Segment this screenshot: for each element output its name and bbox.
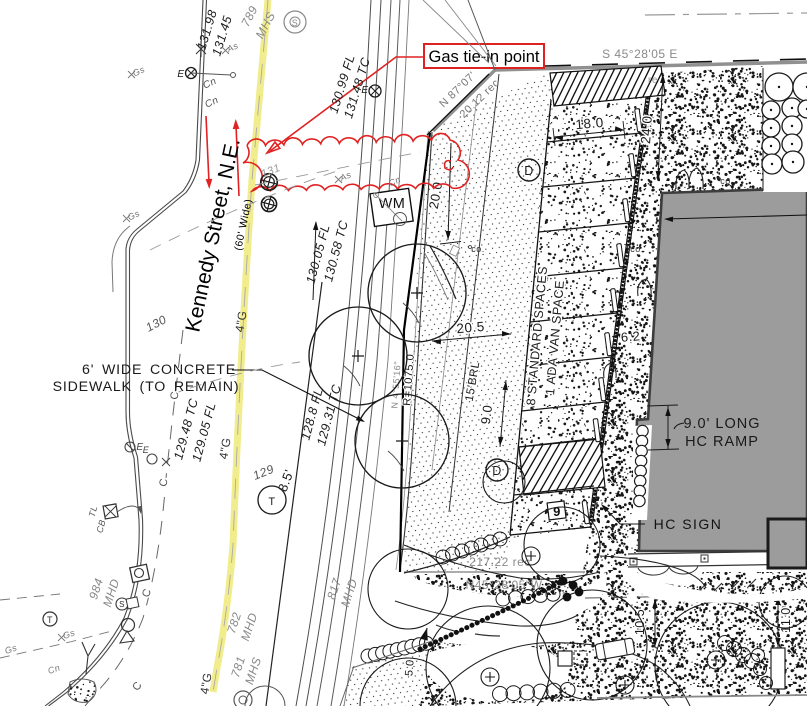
svg-text:S 45°28'05 E: S 45°28'05 E [602, 47, 678, 61]
svg-text:HC RAMP: HC RAMP [685, 434, 759, 450]
svg-text:D: D [492, 464, 502, 478]
svg-text:HC SIGN: HC SIGN [654, 516, 723, 532]
svg-text:E: E [143, 445, 150, 455]
svg-text:S: S [292, 18, 299, 28]
svg-text:T: T [268, 496, 275, 508]
svg-text:D: D [524, 164, 534, 178]
svg-text:T: T [47, 615, 53, 625]
svg-text:co.: co. [630, 244, 644, 254]
svg-text:9.0' LONG: 9.0' LONG [683, 416, 760, 432]
svg-text:co.: co. [471, 244, 485, 254]
svg-text:6' WIDE CONCRETE: 6' WIDE CONCRETE [82, 362, 236, 378]
svg-text:20.5: 20.5 [456, 319, 485, 336]
svg-text:9.0: 9.0 [478, 404, 495, 425]
svg-text:E: E [177, 69, 184, 80]
svg-text:9: 9 [553, 504, 561, 519]
svg-text:11.0: 11.0 [779, 607, 793, 632]
svg-text:WM: WM [379, 196, 406, 212]
svg-text:5.0: 5.0 [403, 659, 416, 677]
svg-text:24.0: 24.0 [638, 115, 655, 144]
svg-text:6.2: 6.2 [620, 328, 641, 345]
svg-text:re: re [648, 75, 658, 86]
svg-text:18.0: 18.0 [575, 115, 604, 132]
svg-text:co.: co. [720, 176, 734, 186]
svg-text:S: S [119, 600, 125, 609]
